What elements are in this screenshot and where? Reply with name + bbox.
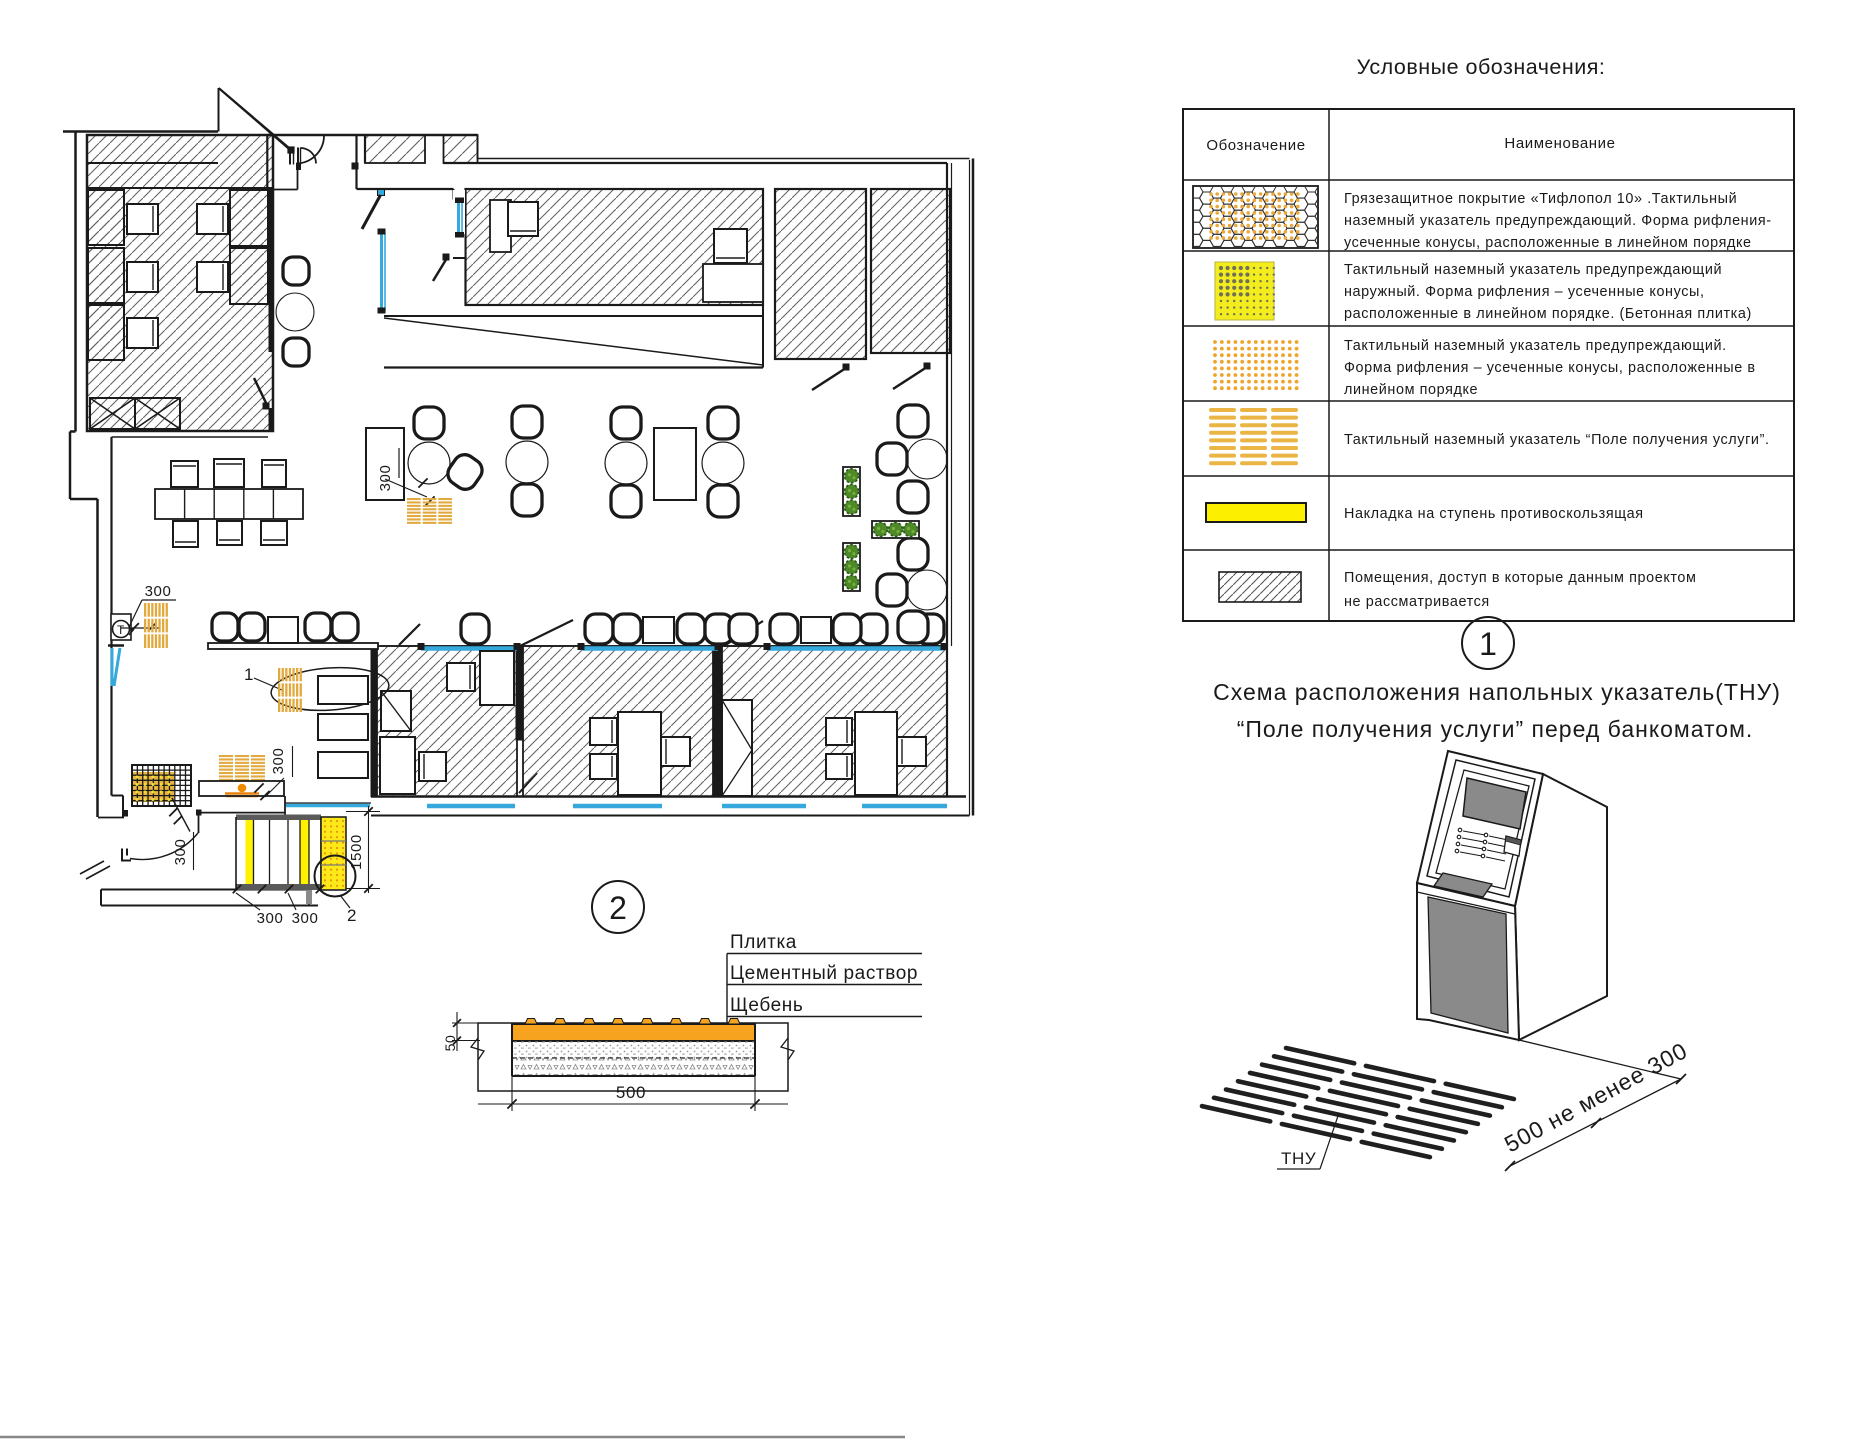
svg-text:Условные обозначения:: Условные обозначения: <box>1357 55 1606 79</box>
svg-text:Помещения, доступ в которые да: Помещения, доступ в которые данным проек… <box>1344 570 1697 586</box>
svg-text:усеченные конусы, расположенны: усеченные конусы, расположенные в линейн… <box>1344 235 1752 251</box>
svg-text:Обозначение: Обозначение <box>1206 137 1305 154</box>
svg-text:1500: 1500 <box>348 834 365 870</box>
svg-text:“Поле получения услуги” перед: “Поле получения услуги” перед банкоматом… <box>1237 716 1754 742</box>
svg-text:300: 300 <box>292 910 319 927</box>
svg-text:1: 1 <box>244 665 254 684</box>
svg-text:Тактильный наземный указатель: Тактильный наземный указатель предупрежд… <box>1344 262 1722 278</box>
svg-text:Плитка: Плитка <box>730 932 797 953</box>
svg-text:Щебень: Щебень <box>730 995 803 1016</box>
svg-text:300: 300 <box>377 465 394 492</box>
svg-text:Тактильный наземный указатель: Тактильный наземный указатель “Поле полу… <box>1344 432 1770 448</box>
svg-text:Схема расположения напольных у: Схема расположения напольных указатель(Т… <box>1213 679 1781 705</box>
svg-text:расположенные в линейном поряд: расположенные в линейном порядке. (Бетон… <box>1344 306 1752 322</box>
svg-text:линейном порядке: линейном порядке <box>1344 382 1478 398</box>
svg-text:наружный. Форма рифления – усе: наружный. Форма рифления – усеченные кон… <box>1344 284 1705 300</box>
svg-text:Цементный раствор: Цементный раствор <box>730 963 918 984</box>
svg-text:Форма рифления – усеченные кон: Форма рифления – усеченные конусы, распо… <box>1344 360 1756 376</box>
svg-text:наземный указатель предупрежда: наземный указатель предупреждающий. Форм… <box>1344 213 1772 229</box>
svg-text:Наименование: Наименование <box>1504 135 1615 152</box>
svg-text:ТНУ: ТНУ <box>1281 1149 1316 1168</box>
svg-text:300: 300 <box>257 910 284 927</box>
svg-text:300: 300 <box>145 583 172 600</box>
svg-text:Накладка на ступень противоско: Накладка на ступень противоскользящая <box>1344 506 1644 522</box>
svg-text:500: 500 <box>616 1083 646 1102</box>
svg-text:Тактильный наземный указатель: Тактильный наземный указатель предупрежд… <box>1344 338 1727 354</box>
svg-text:2: 2 <box>347 906 357 925</box>
svg-text:300: 300 <box>270 748 287 775</box>
svg-text:не рассматривается: не рассматривается <box>1344 594 1490 610</box>
svg-text:T: T <box>117 623 125 637</box>
svg-text:Грязезащитное покрытие «Тифлоп: Грязезащитное покрытие «Тифлопол 10» .Та… <box>1344 191 1737 207</box>
svg-text:2: 2 <box>609 890 627 926</box>
svg-text:1: 1 <box>1479 626 1497 662</box>
